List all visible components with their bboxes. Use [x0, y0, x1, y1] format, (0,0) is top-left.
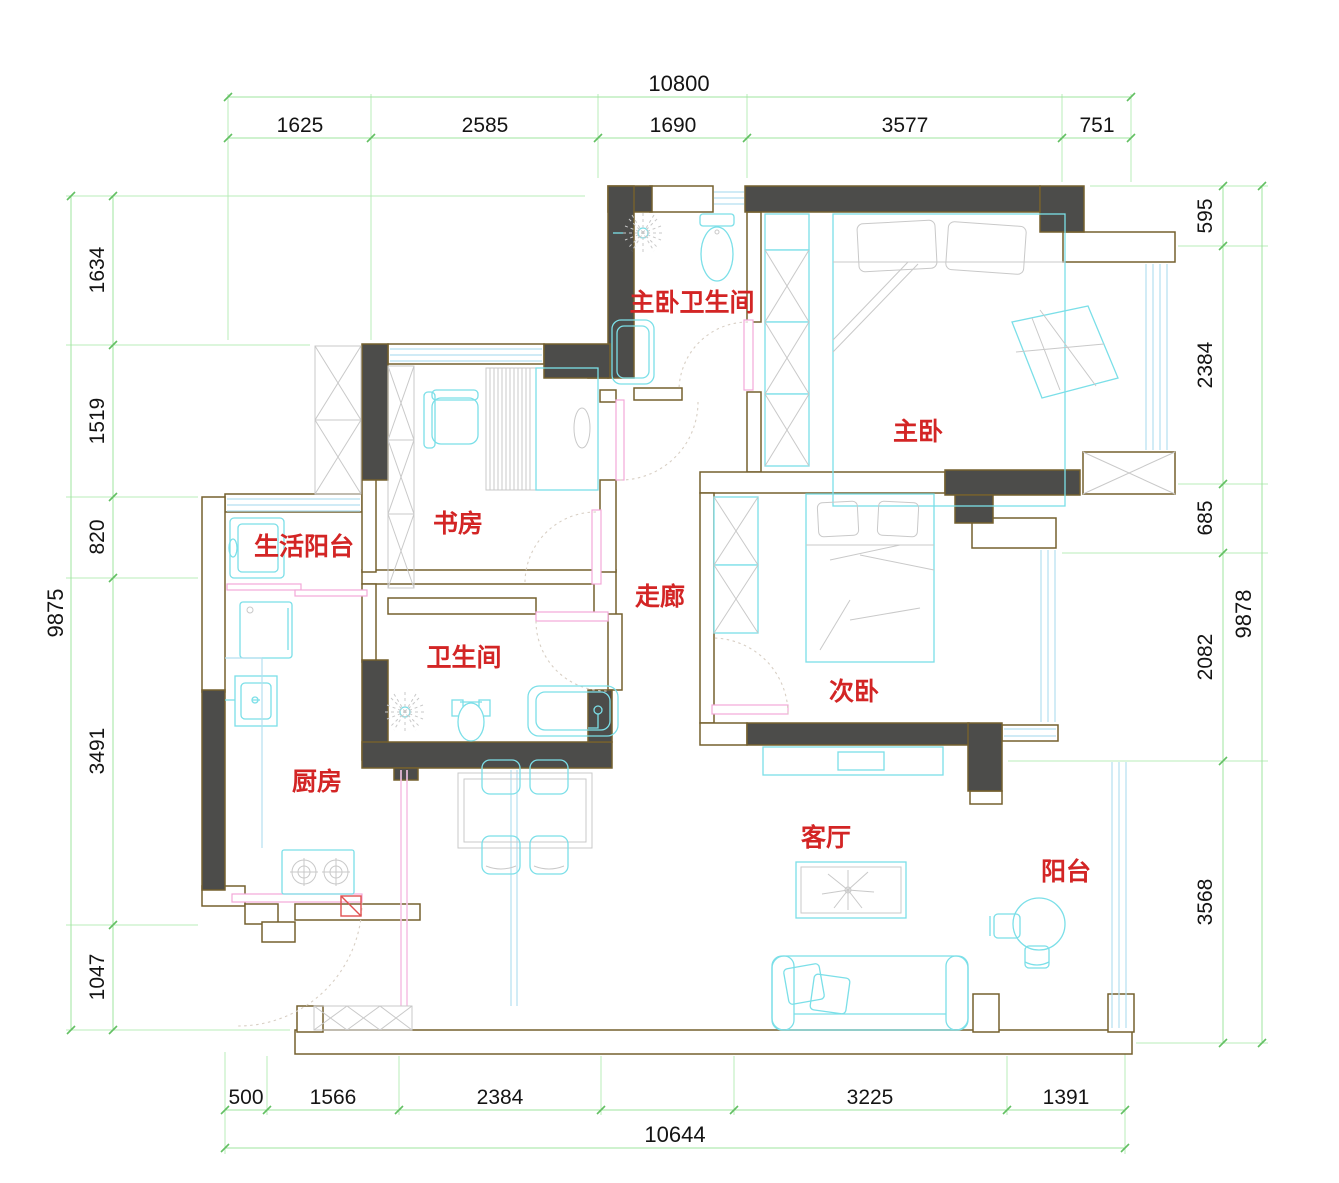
room-label-kitchen: 厨房	[292, 767, 342, 796]
furniture-master-bedroom	[765, 214, 1118, 506]
door-master-bathroom	[679, 320, 753, 390]
dim-left-seg-2: 1519	[86, 398, 109, 445]
dimension-chain-right: 9878 595 2384 685 2082 3568	[1194, 182, 1266, 1047]
toilet	[700, 214, 734, 281]
room-label-master-bedroom: 主卧	[893, 418, 943, 446]
room-label-second-bedroom: 次卧	[829, 678, 879, 706]
wardrobe-study-inner	[388, 366, 414, 588]
tatami-mat	[486, 368, 536, 490]
dim-bottom-seg-5: 1391	[1043, 1086, 1090, 1109]
door-kitchen-slider	[227, 584, 367, 596]
pink-guide-lines	[401, 770, 407, 1006]
wardrobe-study-outer	[315, 346, 361, 494]
furniture-balcony	[990, 898, 1065, 968]
toilet-2	[452, 700, 490, 741]
door-master-bedroom	[616, 400, 698, 480]
dim-left-seg-1: 1634	[86, 246, 109, 293]
dim-top-seg-1: 1625	[277, 114, 324, 137]
coffee-table	[796, 862, 906, 918]
room-label-service-balcony: 生活阳台	[254, 532, 354, 561]
dimension-chain-top: 10800 1625 2585 1690 3577 751	[224, 71, 1135, 142]
furniture-bathroom	[385, 686, 618, 741]
kitchen-sink	[225, 676, 277, 726]
stove	[282, 850, 354, 894]
dim-top-seg-5: 751	[1079, 114, 1114, 137]
sofa	[772, 956, 968, 1030]
room-label-master-bathroom: 主卧卫生间	[629, 289, 754, 317]
door-second-bedroom	[712, 638, 788, 714]
dim-top-seg-4: 3577	[882, 114, 929, 137]
wardrobe-master	[765, 214, 809, 466]
tv-cabinet	[763, 747, 943, 775]
dim-top-seg-3: 1690	[650, 114, 697, 137]
dimension-chain-left: 9875 1634 1519 820 3491 1047	[43, 192, 117, 1034]
balcony-chair	[994, 914, 1020, 938]
study-bed	[536, 368, 598, 490]
dimension-chain-bottom: 10644 500 1566 2384 3225 1391	[221, 1086, 1129, 1152]
room-label-living-room: 客厅	[801, 823, 851, 852]
floor-plan-drawing: 10800 1625 2585 1690 3577 751 9875 1634 …	[0, 0, 1339, 1183]
dim-top-overall: 10800	[648, 71, 709, 96]
room-label-corridor: 走廊	[635, 582, 685, 611]
dim-bottom-overall: 10644	[644, 1122, 705, 1147]
furniture-living-room	[458, 760, 968, 1030]
dim-bottom-seg-3: 2384	[477, 1086, 524, 1109]
room-label-bathroom: 卫生间	[426, 644, 501, 672]
dim-left-overall: 9875	[43, 589, 68, 638]
shower-symbol-2	[385, 692, 425, 732]
dim-top-seg-2: 2585	[462, 114, 509, 137]
dim-right-seg-4: 2082	[1194, 634, 1217, 681]
room-label-balcony: 阳台	[1041, 857, 1091, 886]
dim-bottom-seg-4: 3225	[847, 1086, 894, 1109]
dim-right-seg-2: 2384	[1194, 341, 1217, 388]
door-bathroom	[536, 612, 608, 691]
floor-plan-canvas: 10800 1625 2585 1690 3577 751 9875 1634 …	[0, 0, 1339, 1183]
balcony-table	[1013, 898, 1065, 950]
furniture-kitchen	[225, 602, 354, 894]
dim-bottom-seg-2: 1566	[310, 1086, 357, 1109]
bed-second	[806, 494, 934, 662]
furniture-study	[315, 346, 598, 588]
shoe-cabinet	[314, 1006, 412, 1030]
dim-bottom-seg-1: 500	[228, 1086, 263, 1109]
fridge	[240, 602, 292, 658]
dining-table	[458, 760, 592, 874]
dim-left-seg-4: 3491	[86, 728, 109, 775]
dim-right-overall: 9878	[1231, 590, 1256, 639]
dim-left-seg-3: 820	[86, 519, 109, 554]
dim-right-seg-5: 3568	[1194, 879, 1217, 926]
dim-right-seg-3: 685	[1194, 500, 1217, 535]
desk-chair	[424, 390, 478, 448]
room-label-study: 书房	[433, 509, 483, 538]
dim-left-seg-5: 1047	[86, 954, 109, 1001]
wardrobe-second	[714, 497, 758, 633]
dim-right-seg-1: 595	[1194, 198, 1217, 233]
